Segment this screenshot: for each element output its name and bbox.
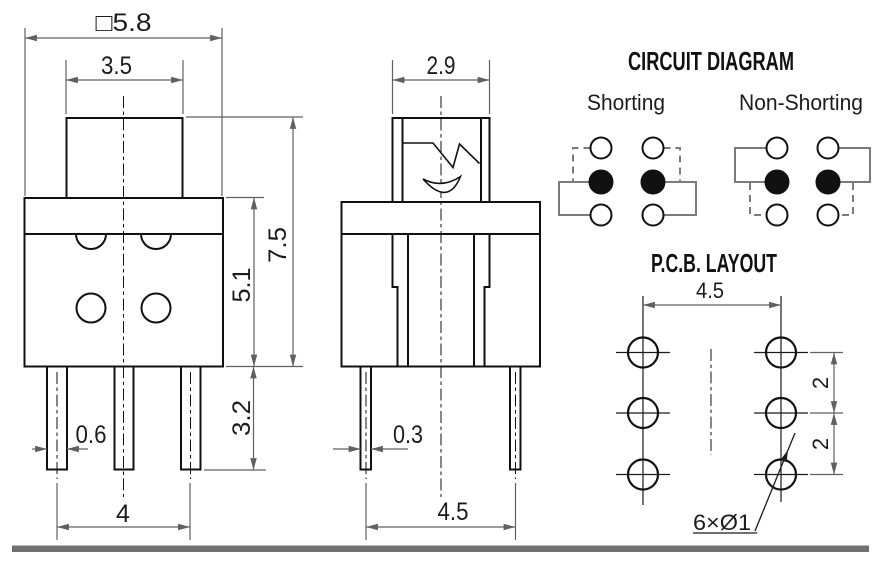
shorting-common-left xyxy=(590,171,613,194)
pcb-hole-callout: 6×Ø1 xyxy=(693,433,795,535)
dim-pin-span: 4 xyxy=(116,500,130,528)
dim-overall-width: □5.8 xyxy=(96,9,152,37)
front-hole-left xyxy=(77,294,106,323)
dim-side-pin-span: 4.5 xyxy=(438,498,469,526)
side-view: 2.9 0.3 4.5 xyxy=(333,52,540,540)
side-centerlines xyxy=(366,96,516,497)
non-shorting-common-left xyxy=(766,171,789,194)
dim-pcb-row-pitch-top: 2 xyxy=(808,377,833,389)
side-slot-left xyxy=(393,234,398,366)
front-notch-left xyxy=(76,234,106,249)
circuit-diagram-title: CIRCUIT DIAGRAM xyxy=(628,46,794,76)
dim-overall-height: 7.5 xyxy=(264,227,292,263)
dim-pin-length: 3.2 xyxy=(228,400,256,436)
dim-side-cap-width: 2.9 xyxy=(427,52,456,80)
hole-callout-text: 6×Ø1 xyxy=(693,510,751,535)
shorting-schematic xyxy=(559,138,696,226)
side-slot-right xyxy=(485,234,490,366)
dim-pcb-column-span: 4.5 xyxy=(696,278,724,303)
front-view: □5.8 3.5 7.5 5.1 3.2 0.6 4 xyxy=(25,9,304,540)
front-notch-right xyxy=(141,234,171,249)
dim-side-pin-width: 0.3 xyxy=(393,421,423,449)
pcb-crosshairs xyxy=(616,296,808,505)
contact-crescent xyxy=(423,177,461,193)
dim-body-height: 5.1 xyxy=(228,268,256,303)
drawing-svg: □5.8 3.5 7.5 5.1 3.2 0.6 4 xyxy=(0,0,881,566)
non-shorting-common-right xyxy=(817,171,840,194)
dim-pin-width: 0.6 xyxy=(76,421,107,449)
datasheet-drawing: □5.8 3.5 7.5 5.1 3.2 0.6 4 xyxy=(0,0,881,566)
non-shorting-label: Non-Shorting xyxy=(739,90,863,115)
footer-bar xyxy=(12,546,869,553)
front-hole-right xyxy=(142,294,171,323)
dim-cap-width: 3.5 xyxy=(101,52,132,80)
shorting-common-right xyxy=(642,171,665,194)
shorting-label: Shorting xyxy=(587,90,665,115)
pcb-layout-title: P.C.B. LAYOUT xyxy=(651,248,777,278)
dim-pcb-row-pitch-bottom: 2 xyxy=(808,438,833,450)
pcb-layout: P.C.B. LAYOUT 4.5 2 2 xyxy=(616,248,843,535)
circuit-diagram: CIRCUIT DIAGRAM Shorting Non-Shorting xyxy=(559,46,870,226)
shorting-terminals xyxy=(590,138,665,226)
non-shorting-schematic xyxy=(735,138,870,226)
non-shorting-terminals xyxy=(766,138,840,226)
